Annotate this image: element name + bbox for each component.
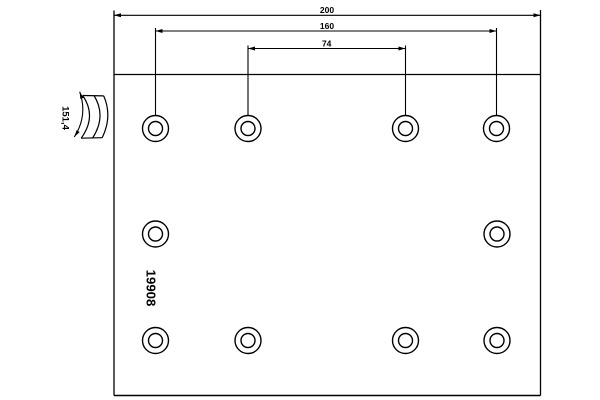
svg-text:160: 160 [320,21,334,31]
svg-text:151,4: 151,4 [60,106,71,130]
svg-text:200: 200 [320,5,334,15]
svg-text:19908: 19908 [144,270,159,307]
svg-text:74: 74 [322,38,332,48]
